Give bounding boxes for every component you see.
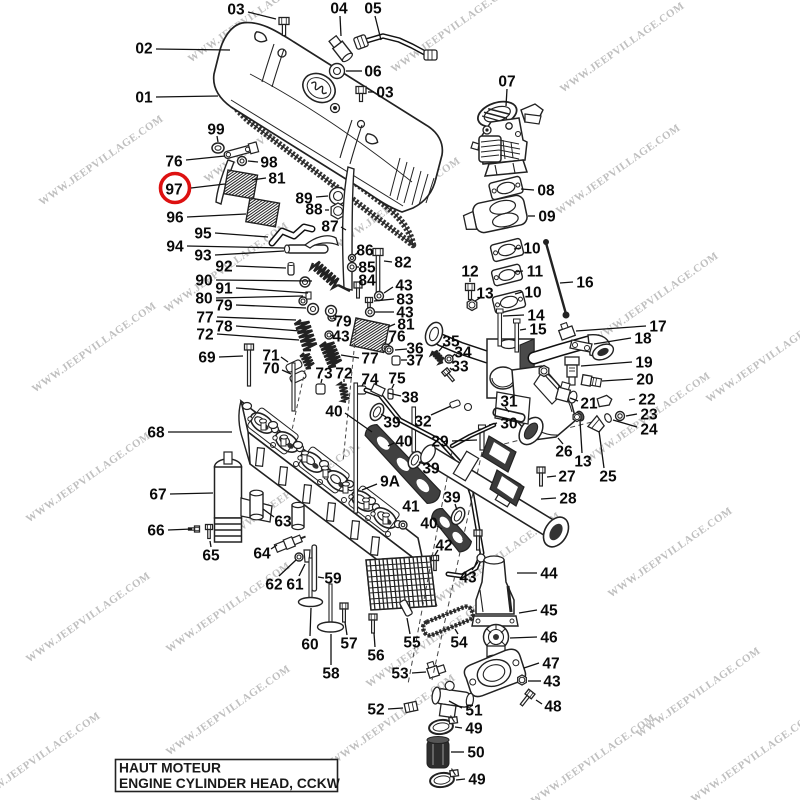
svg-text:60: 60 [301,637,318,654]
svg-text:37: 37 [406,353,423,370]
svg-text:11: 11 [527,264,544,281]
svg-text:61: 61 [286,577,304,594]
svg-text:90: 90 [195,273,212,290]
svg-text:02: 02 [135,41,152,58]
svg-text:48: 48 [544,699,562,716]
svg-text:79: 79 [215,298,233,315]
svg-text:74: 74 [361,372,379,389]
svg-text:10: 10 [524,285,541,302]
svg-text:77: 77 [361,351,378,368]
svg-text:63: 63 [274,514,292,531]
svg-text:33: 33 [451,359,469,376]
svg-text:26: 26 [555,444,573,461]
svg-text:39: 39 [383,415,401,432]
svg-text:49: 49 [465,721,483,738]
svg-text:66: 66 [147,523,165,540]
svg-text:78: 78 [215,319,233,336]
svg-text:32: 32 [414,414,431,431]
svg-text:13: 13 [574,454,592,471]
svg-text:47: 47 [542,656,559,673]
svg-text:96: 96 [166,210,184,227]
svg-text:28: 28 [559,491,577,508]
svg-text:84: 84 [358,273,376,290]
svg-text:76: 76 [165,154,183,171]
svg-text:57: 57 [340,636,357,653]
svg-text:45: 45 [540,603,558,620]
svg-text:9A: 9A [380,474,400,491]
svg-text:50: 50 [467,745,484,762]
svg-text:53: 53 [391,666,409,683]
svg-text:15: 15 [529,322,547,339]
svg-text:40: 40 [325,404,342,421]
svg-text:01: 01 [135,90,153,107]
svg-text:52: 52 [367,702,384,719]
svg-text:70: 70 [262,361,279,378]
svg-text:03: 03 [376,85,394,102]
svg-text:92: 92 [215,259,232,276]
svg-text:67: 67 [149,487,166,504]
svg-text:44: 44 [540,566,558,583]
svg-text:40: 40 [395,434,412,451]
svg-text:59: 59 [324,571,342,588]
svg-text:51: 51 [465,703,483,720]
svg-text:91: 91 [215,281,233,298]
svg-text:13: 13 [476,286,494,303]
svg-text:46: 46 [540,630,558,647]
svg-text:05: 05 [364,1,382,18]
svg-text:65: 65 [202,548,220,565]
svg-text:99: 99 [207,122,225,139]
svg-text:ENGINE CYLINDER HEAD, CCKW: ENGINE CYLINDER HEAD, CCKW [119,776,341,791]
svg-text:75: 75 [388,371,406,388]
svg-text:86: 86 [356,243,374,260]
svg-text:43: 43 [332,329,350,346]
svg-text:24: 24 [640,422,658,439]
svg-text:76: 76 [388,329,406,346]
svg-text:17: 17 [649,319,666,336]
svg-text:12: 12 [461,264,478,281]
svg-text:19: 19 [635,355,653,372]
svg-text:40: 40 [420,516,437,533]
svg-text:73: 73 [315,366,333,383]
svg-text:03: 03 [227,2,245,19]
svg-text:72: 72 [196,327,213,344]
svg-text:69: 69 [198,350,216,367]
svg-text:16: 16 [576,275,594,292]
svg-text:HAUT MOTEUR: HAUT MOTEUR [119,761,221,776]
svg-text:81: 81 [268,171,286,188]
svg-text:21: 21 [580,396,598,413]
svg-text:39: 39 [422,461,440,478]
svg-text:80: 80 [195,291,212,308]
svg-text:68: 68 [147,425,165,442]
svg-text:62: 62 [265,577,282,594]
svg-text:77: 77 [196,310,213,327]
svg-text:38: 38 [401,390,419,407]
svg-text:41: 41 [402,499,420,516]
svg-text:07: 07 [498,74,515,91]
svg-text:54: 54 [450,635,468,652]
svg-text:08: 08 [537,183,555,200]
svg-text:31: 31 [500,394,518,411]
svg-text:06: 06 [364,64,382,81]
svg-text:20: 20 [636,372,653,389]
svg-text:49: 49 [468,772,486,789]
svg-text:43: 43 [459,570,477,587]
svg-text:93: 93 [194,248,212,265]
svg-text:94: 94 [166,239,184,256]
svg-text:10: 10 [523,241,540,258]
svg-text:42: 42 [435,538,452,555]
svg-text:88: 88 [305,202,323,219]
svg-text:58: 58 [322,666,340,683]
svg-text:43: 43 [543,674,561,691]
svg-text:95: 95 [194,226,212,243]
svg-text:56: 56 [367,648,385,665]
svg-text:27: 27 [558,469,575,486]
svg-text:82: 82 [394,255,411,272]
svg-text:98: 98 [260,155,278,172]
svg-text:39: 39 [443,490,461,507]
svg-text:29: 29 [431,434,449,451]
svg-text:30: 30 [500,416,517,433]
svg-text:55: 55 [403,635,421,652]
svg-text:09: 09 [538,209,556,226]
svg-text:25: 25 [599,469,617,486]
svg-text:18: 18 [634,331,652,348]
svg-text:64: 64 [253,546,271,563]
svg-text:04: 04 [330,1,348,18]
svg-text:97: 97 [165,182,182,199]
svg-text:72: 72 [335,366,352,383]
svg-text:87: 87 [321,219,338,236]
